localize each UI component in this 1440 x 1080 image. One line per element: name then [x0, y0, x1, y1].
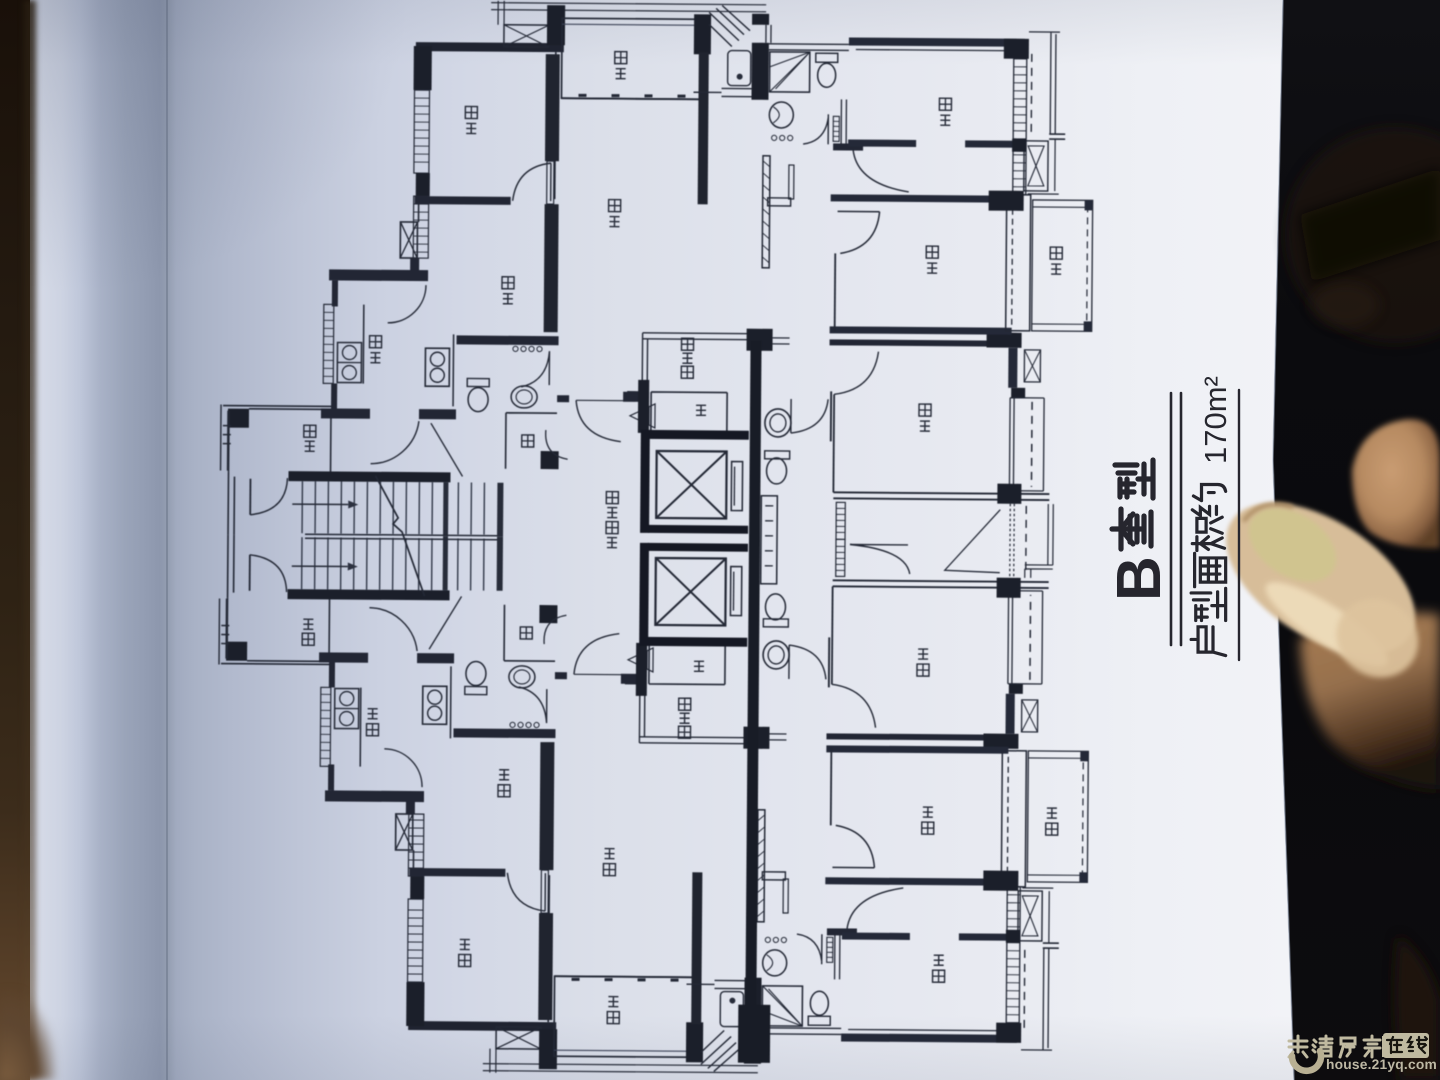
svg-text:house.21yq.com: house.21yq.com [1326, 1057, 1437, 1072]
